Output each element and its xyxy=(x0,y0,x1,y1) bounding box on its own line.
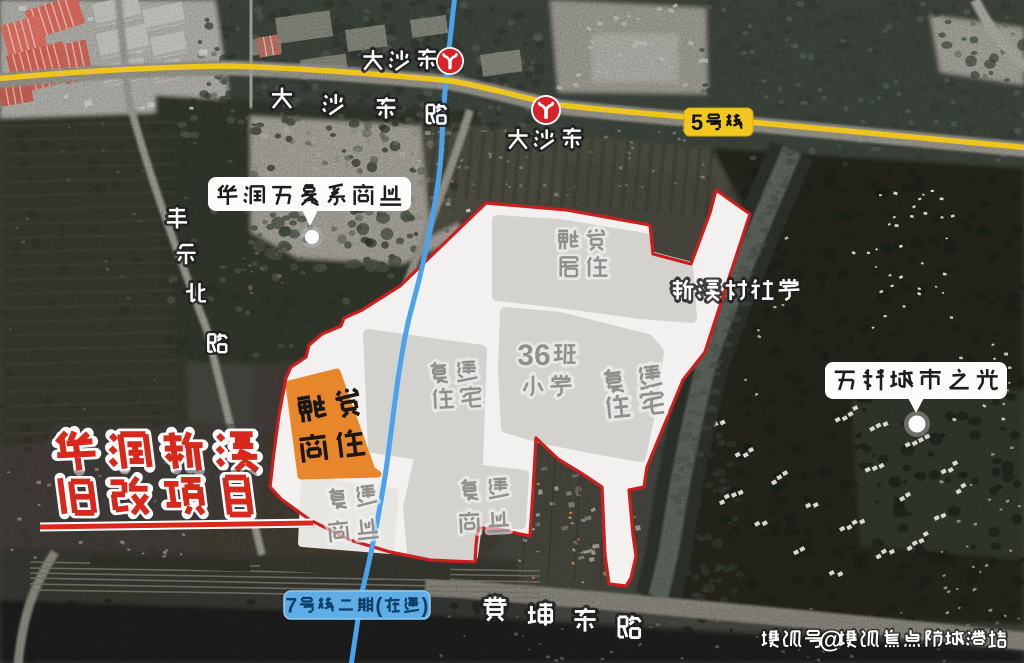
svg-text:3: 3 xyxy=(517,339,534,372)
svg-text:5: 5 xyxy=(691,110,703,135)
svg-text:@: @ xyxy=(819,627,843,654)
svg-text:(: ( xyxy=(375,595,382,618)
svg-text:6: 6 xyxy=(534,339,551,372)
svg-text:7: 7 xyxy=(285,595,297,618)
svg-text:): ) xyxy=(422,595,429,618)
